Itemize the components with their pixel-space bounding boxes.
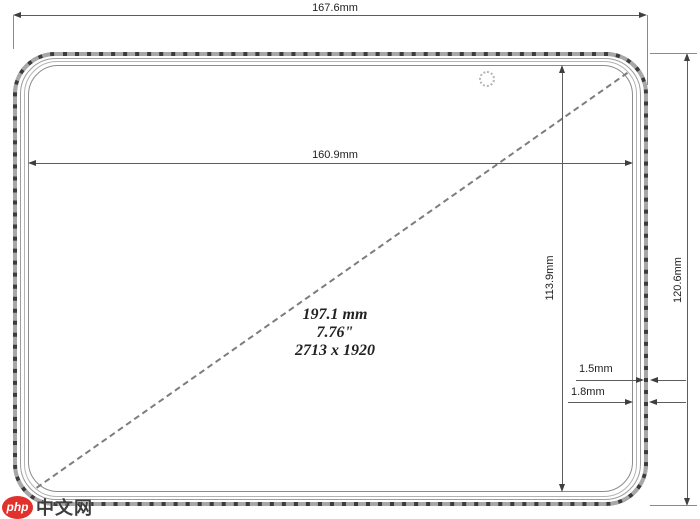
dimension-drawing: 167.6mm 160.9mm 113.9mm 120.6mm 197.1 mm… xyxy=(0,0,700,519)
overall-width-dim-line xyxy=(16,15,642,16)
arrow-left-icon xyxy=(13,12,21,18)
overall-height-dim-line xyxy=(687,57,688,501)
extension-line xyxy=(647,15,648,85)
overall-width-label: 167.6mm xyxy=(235,2,435,14)
overall-height-label: 120.6mm xyxy=(671,240,685,320)
arrow-right-icon xyxy=(639,12,647,18)
front-camera-circle xyxy=(479,71,495,87)
screen-height-label: 113.9mm xyxy=(543,238,557,318)
edge-leader-line xyxy=(658,380,686,381)
edge-leader-line xyxy=(576,380,636,381)
extension-line xyxy=(13,15,14,49)
watermark: php 中文网 xyxy=(2,494,93,519)
extension-line xyxy=(650,505,697,506)
arrow-left-icon xyxy=(28,160,36,166)
arrow-right-icon xyxy=(636,377,644,383)
arrow-up-icon xyxy=(684,53,690,61)
screen-height-dim-line xyxy=(562,70,563,487)
screen-width-label: 160.9mm xyxy=(235,149,435,161)
watermark-site-label: 中文网 xyxy=(36,494,93,519)
edge-thickness-label-1: 1.5mm xyxy=(579,363,613,375)
arrow-up-icon xyxy=(559,65,565,73)
arrow-down-icon xyxy=(559,484,565,492)
arrow-right-icon xyxy=(625,399,633,405)
arrow-left-icon xyxy=(649,399,657,405)
diagonal-resolution-label: 2713 x 1920 xyxy=(235,342,435,360)
extension-line xyxy=(650,53,697,54)
diagonal-mm-label: 197.1 mm xyxy=(235,306,435,324)
diagonal-inches-label: 7.76" xyxy=(235,324,435,342)
edge-leader-line xyxy=(657,402,686,403)
arrow-right-icon xyxy=(625,160,633,166)
screen-width-dim-line xyxy=(34,163,627,164)
edge-thickness-label-2: 1.8mm xyxy=(571,386,605,398)
edge-leader-line xyxy=(568,402,625,403)
arrow-left-icon xyxy=(650,377,658,383)
diagonal-size-label: 197.1 mm 7.76" 2713 x 1920 xyxy=(235,306,435,360)
php-logo-badge: php xyxy=(2,496,33,519)
